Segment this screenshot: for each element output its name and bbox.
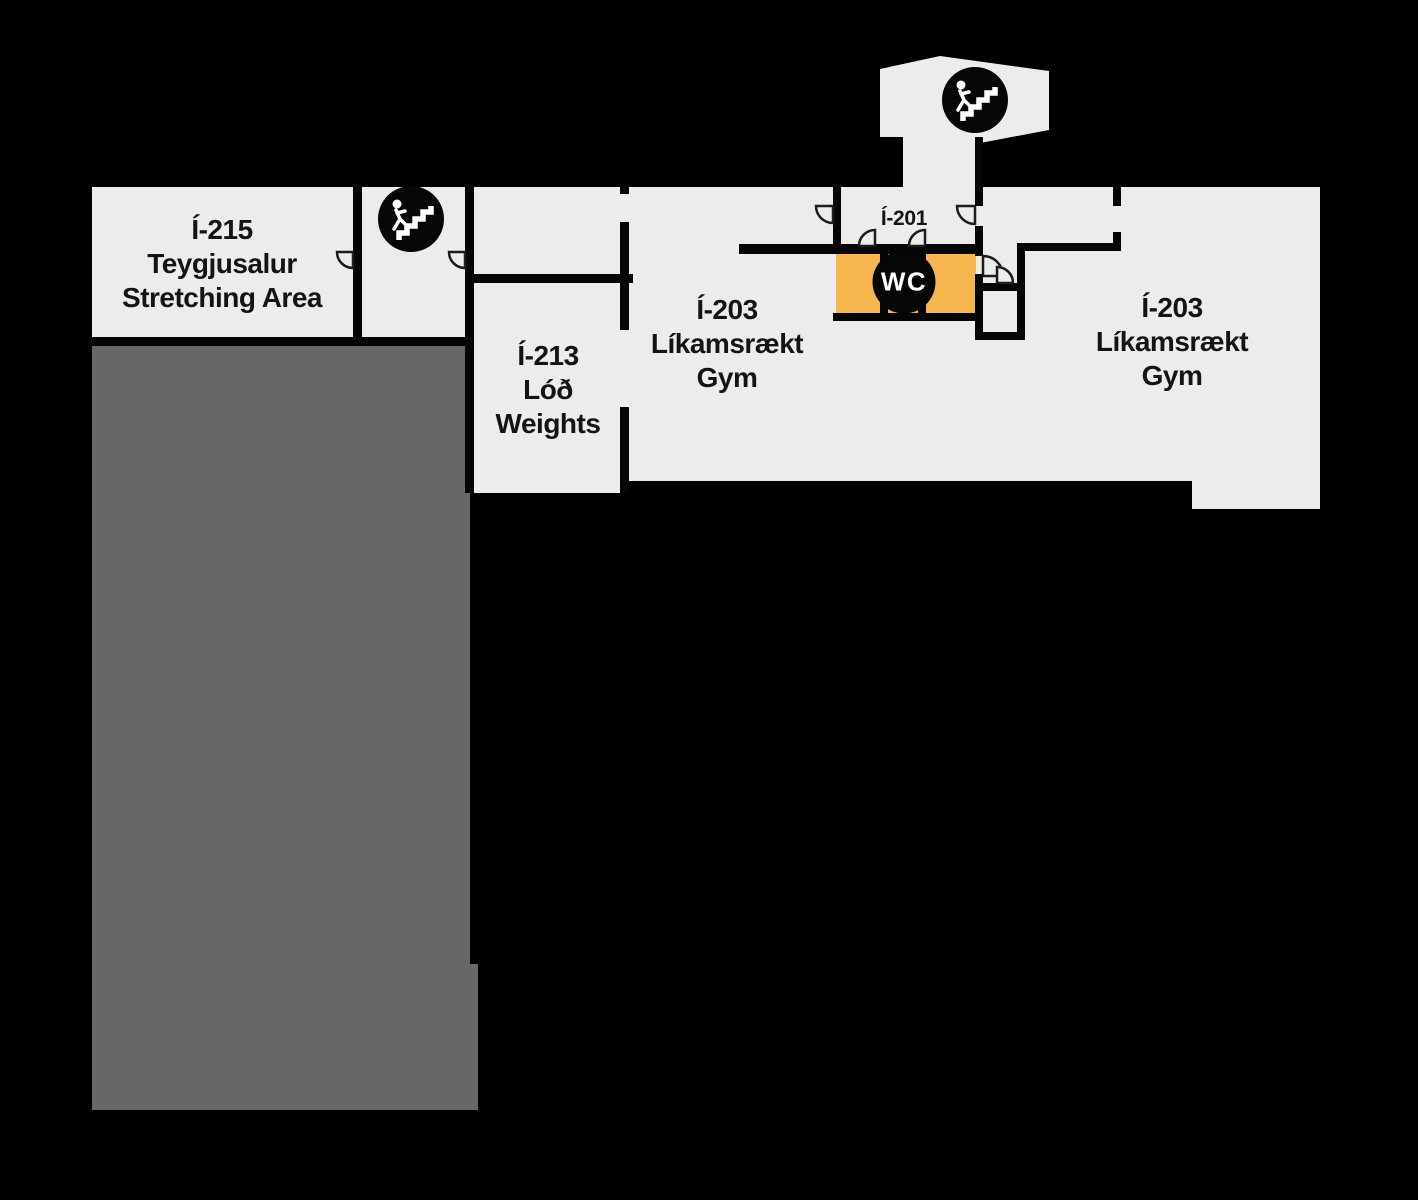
- wall-rightgym-stub-top: [1113, 187, 1121, 206]
- wall-stem-east-upper: [975, 137, 983, 206]
- wall-left-rooms-bottom: [90, 337, 474, 346]
- floor-plan: Í-215 Teygjusalur Stretching Area Í-213 …: [0, 0, 1418, 1200]
- room-label-i203-center: Í-203 Líkamsrækt Gym: [651, 293, 803, 395]
- floor-plan-svg: [0, 0, 1418, 1200]
- wall-gym-west-low: [620, 407, 629, 493]
- wall-corridor-i213: [465, 274, 633, 283]
- wall-wc-bottom: [833, 313, 983, 321]
- wall-right-corridor: [1017, 243, 1121, 251]
- stairs-icon: [378, 186, 444, 252]
- wall-closet-east: [1017, 243, 1025, 340]
- wc-circle-badge: WC: [873, 251, 936, 314]
- wall-stem-east-mid: [975, 226, 983, 256]
- wall-i215-stairwell: [353, 186, 362, 346]
- room-label-i203-right: Í-203 Líkamsrækt Gym: [1096, 291, 1248, 393]
- room-label-i201: Í-201: [881, 208, 927, 230]
- room-label-i215: Í-215 Teygjusalur Stretching Area: [122, 213, 322, 315]
- wall-gym-west-stub: [620, 187, 629, 194]
- stairs-icon: [942, 67, 1008, 133]
- room-label-i213: Í-213 Lóð Weights: [496, 339, 601, 441]
- wall-rightgym-stub-bottom: [1113, 232, 1121, 251]
- wall-gym-west-mid: [620, 222, 629, 330]
- open-area: [92, 346, 478, 1110]
